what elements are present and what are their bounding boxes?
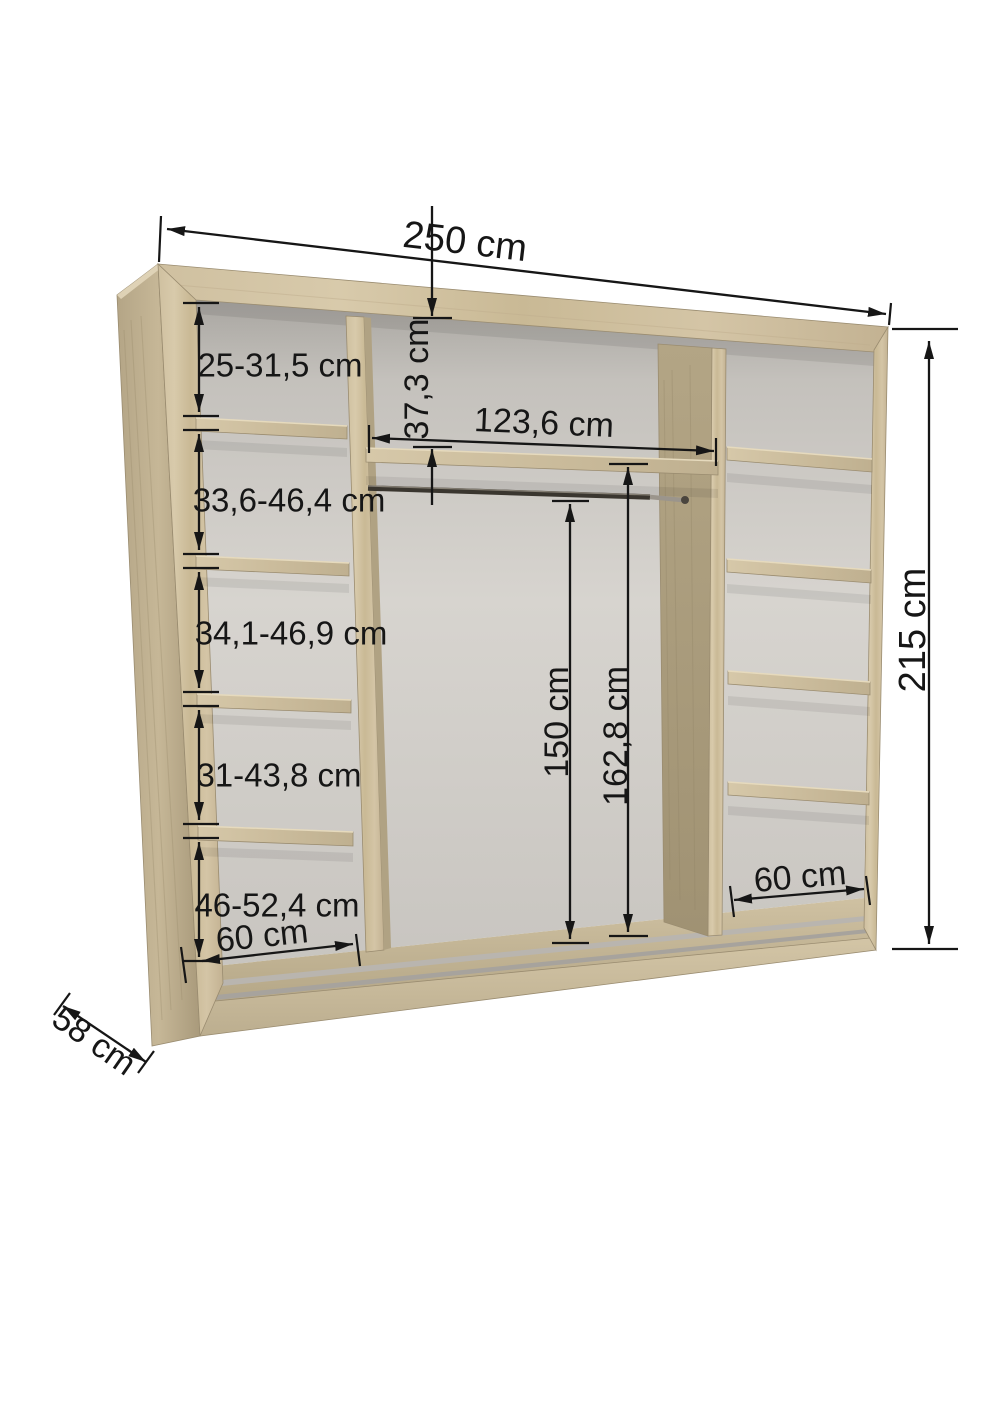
dim-label-left-comp-5: 46-52,4 cm	[194, 887, 359, 924]
diagram-canvas: 250 cm 215 cm 58 cm 37,3 cm 123,6 cm 150…	[0, 0, 992, 1403]
dim-label-total-height: 215 cm	[892, 568, 934, 693]
dim-label-center-width: 123,6 cm	[473, 401, 614, 445]
dim-label-rail-clearance: 150 cm	[538, 666, 576, 778]
dim-label-left-comp-2: 33,6-46,4 cm	[193, 482, 386, 519]
dim-label-left-comp-4: 31-43,8 cm	[196, 757, 361, 794]
dim-label-top-compartment: 37,3 cm	[398, 319, 436, 440]
wardrobe-dimension-diagram: 250 cm 215 cm 58 cm 37,3 cm 123,6 cm 150…	[0, 0, 992, 1403]
dim-label-center-height: 162,8 cm	[597, 666, 635, 806]
dim-label-right-width: 60 cm	[752, 854, 848, 900]
dim-label-left-comp-3: 34,1-46,9 cm	[195, 615, 388, 652]
rail-end-cap	[650, 497, 682, 500]
dim-label-left-comp-1: 25-31,5 cm	[197, 347, 362, 384]
rail-knob	[681, 496, 689, 504]
divider-right-side-face	[658, 344, 712, 936]
